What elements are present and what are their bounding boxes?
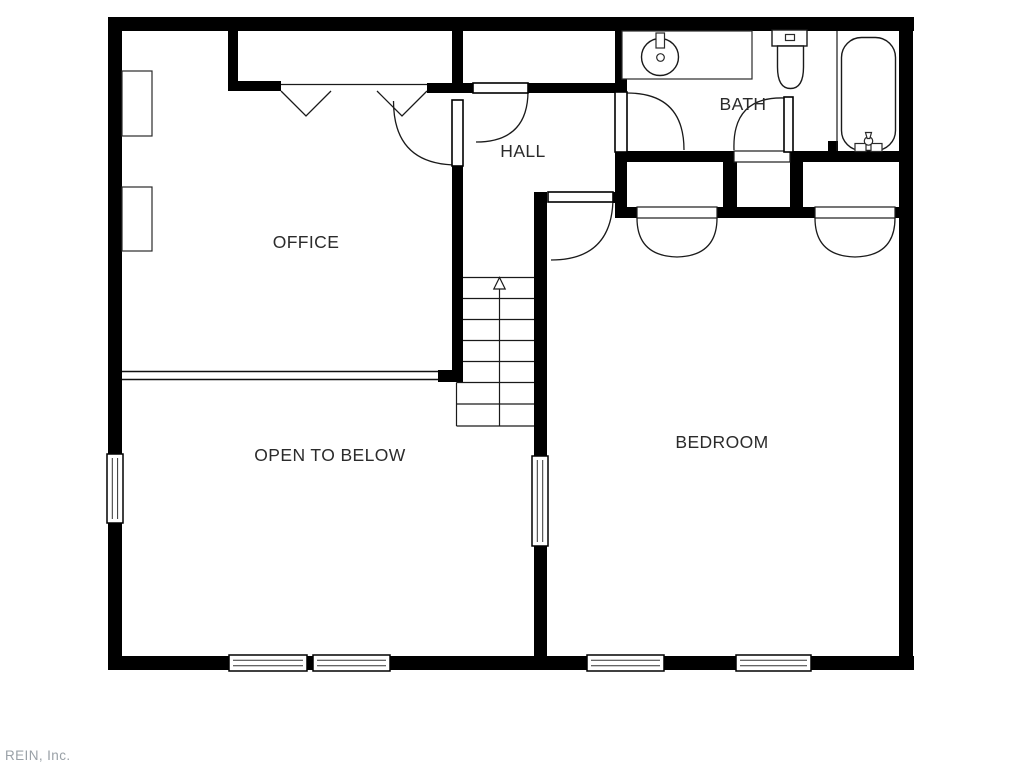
bedroom-west-wall-upper	[534, 192, 547, 456]
railing	[122, 372, 438, 380]
room-label-bath: BATH	[720, 94, 767, 114]
bath-fixtures	[622, 30, 896, 152]
stairs	[457, 278, 535, 427]
room-label-open-to-below: OPEN TO BELOW	[254, 445, 405, 465]
bedroom-door	[548, 192, 613, 260]
closet-bifold-doors-left	[637, 207, 717, 257]
office-closet-wall-stub	[228, 81, 281, 91]
bedroom-top-wall-b	[717, 207, 815, 218]
office-fixtures	[122, 71, 152, 251]
bath-door	[615, 92, 684, 152]
floor-plan-page: OFFICE HALL BATH BEDROOM OPEN TO BELOW R…	[0, 0, 1024, 768]
interior-walls	[228, 17, 899, 656]
office-closet-wall-right-stub	[427, 83, 453, 93]
closet-divider-wall-1	[723, 162, 737, 208]
window-bottom-open-right	[313, 655, 390, 671]
wall-top	[108, 17, 914, 31]
window-bottom-open-left	[229, 655, 307, 671]
wall-left	[108, 17, 122, 670]
hall-closet-wall-right	[528, 83, 617, 93]
office-closet-doors	[281, 85, 427, 117]
window-left-wall	[107, 454, 123, 523]
window-bedroom-west-wall	[532, 456, 548, 546]
room-label-office: OFFICE	[273, 232, 340, 252]
bath-bottom-wall-left	[627, 151, 734, 162]
window-bedroom-bottom-right	[736, 655, 811, 671]
office-hall-wall-upper	[452, 17, 463, 93]
wall-right	[899, 17, 913, 670]
bath-bottom-wall-right	[790, 151, 899, 162]
railing-post	[438, 370, 457, 382]
window-bedroom-bottom-left	[587, 655, 664, 671]
shelf-left-lower	[122, 187, 152, 251]
shelf-left-upper	[122, 71, 152, 136]
windows	[107, 454, 811, 671]
bathtub	[842, 38, 896, 152]
office-hall-wall-lower	[452, 166, 463, 382]
closet-divider-wall-2	[790, 162, 803, 208]
hall-closet-door	[473, 83, 528, 142]
bedroom-west-wall-lower	[534, 546, 547, 656]
floor-plan: OFFICE HALL BATH BEDROOM OPEN TO BELOW R…	[0, 0, 1024, 768]
closet-bifold-doors-right	[815, 207, 895, 257]
bedroom-top-wall-a	[615, 207, 637, 218]
room-label-hall: HALL	[500, 141, 545, 161]
office-door	[394, 100, 464, 166]
watermark: REIN, Inc.	[5, 748, 71, 763]
bedroom-door-stub	[613, 192, 625, 203]
room-label-bedroom: BEDROOM	[675, 432, 768, 452]
toilet	[772, 30, 807, 89]
